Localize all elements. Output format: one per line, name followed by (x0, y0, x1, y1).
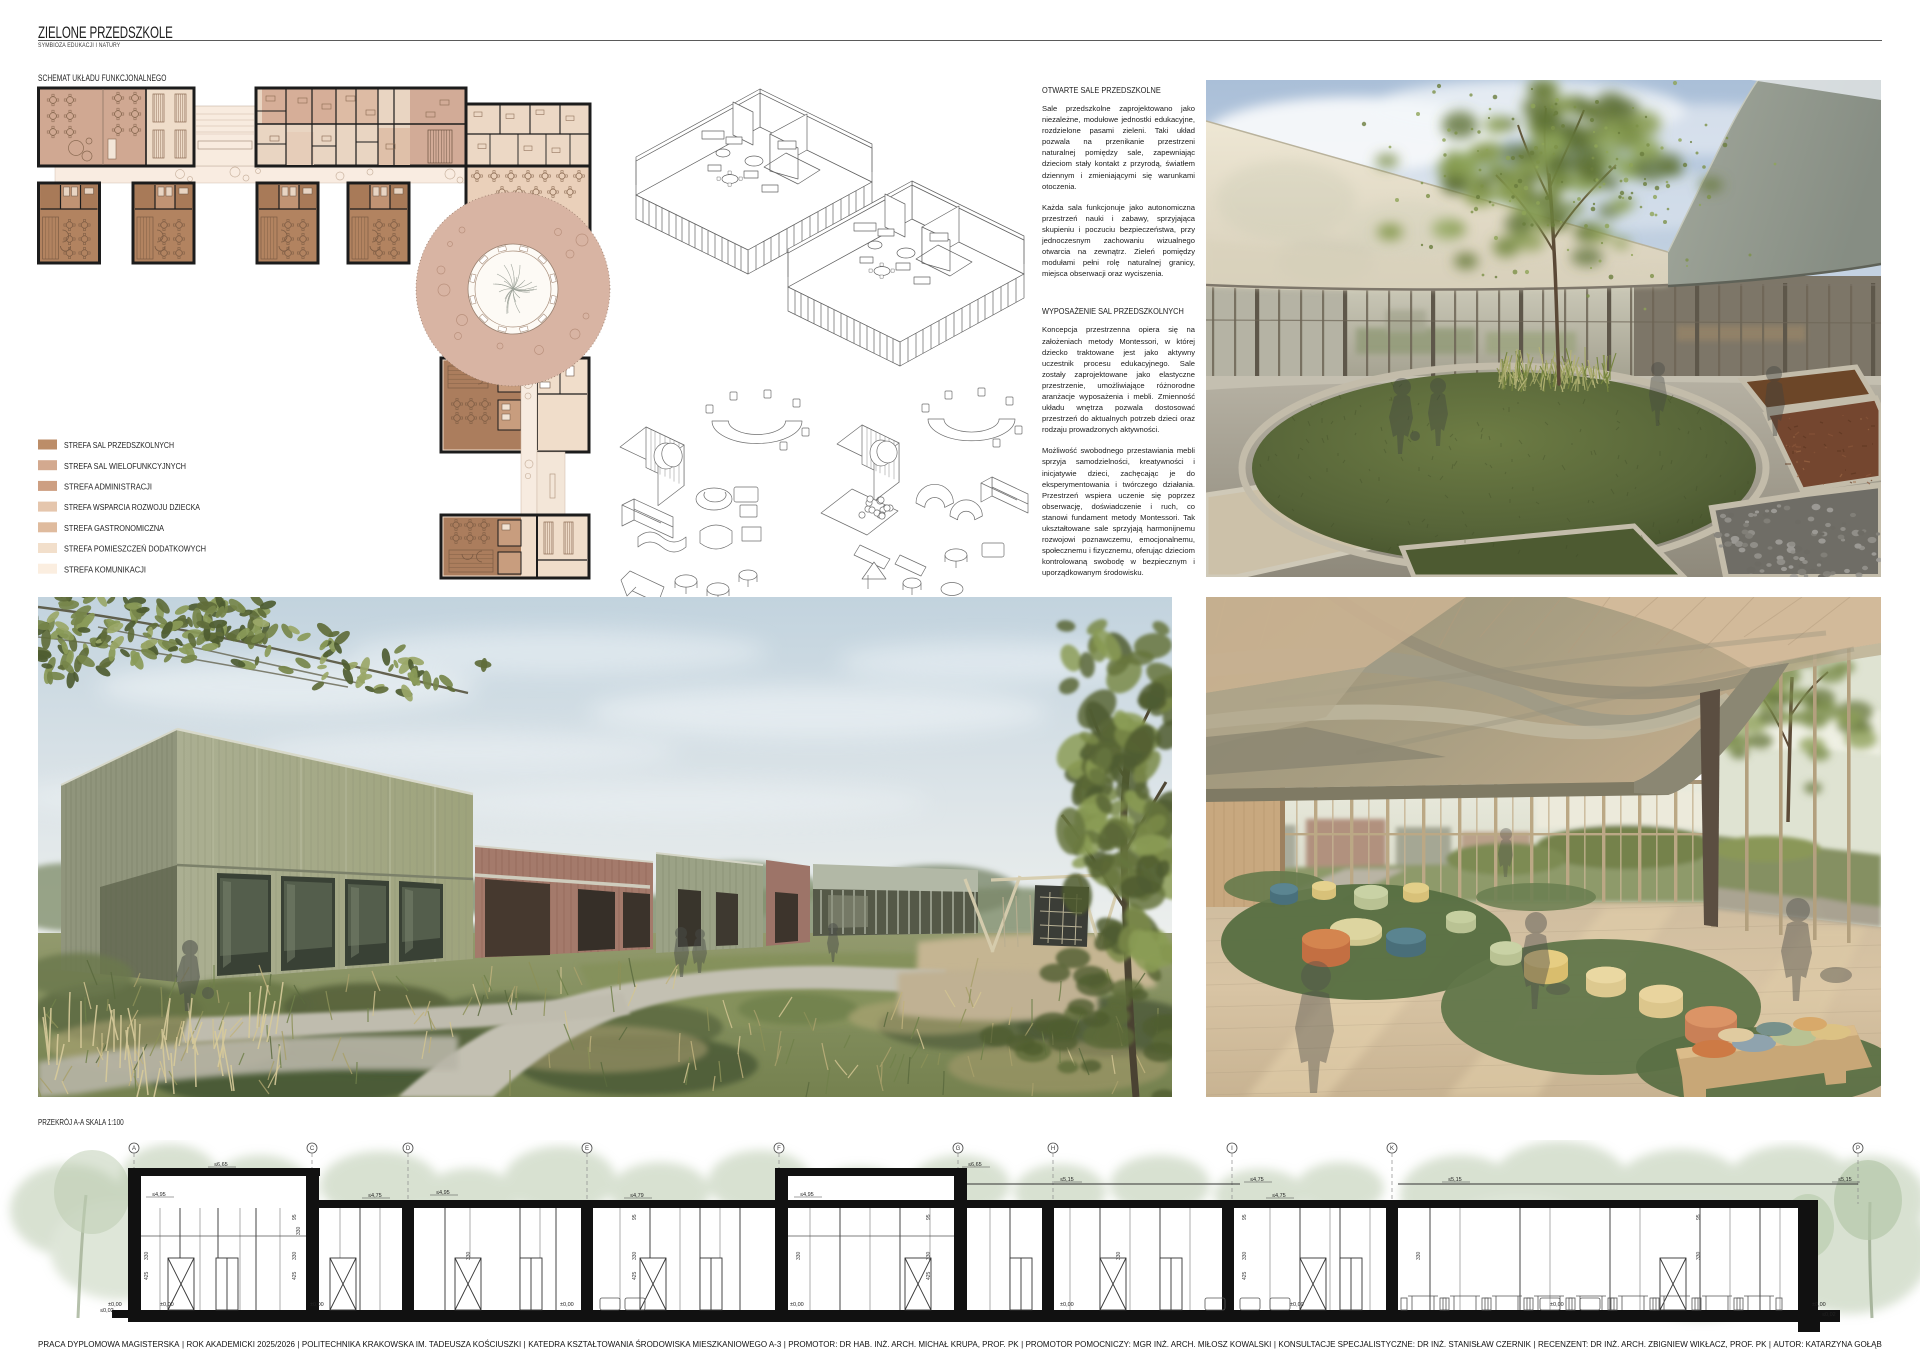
svg-text:±0,00: ±0,00 (1060, 1302, 1074, 1308)
svg-text:425: 425 (1242, 1271, 1248, 1280)
svg-text:95: 95 (926, 1214, 932, 1220)
svg-text:425: 425 (144, 1271, 150, 1280)
svg-text:≤0,02: ≤0,02 (100, 1308, 114, 1314)
svg-text:330: 330 (466, 1251, 472, 1260)
svg-text:STREFA POMIESZCZEŃ DODATKOWYCH: STREFA POMIESZCZEŃ DODATKOWYCH (64, 544, 206, 554)
svg-text:330: 330 (1416, 1251, 1422, 1260)
svg-text:95: 95 (1242, 1214, 1248, 1220)
svg-text:P: P (1856, 1146, 1860, 1152)
svg-text:K: K (1390, 1146, 1394, 1152)
svg-text:STREFA GASTRONOMICZNA: STREFA GASTRONOMICZNA (64, 523, 164, 533)
svg-text:330: 330 (144, 1251, 150, 1260)
svg-text:H: H (1051, 1146, 1055, 1152)
svg-text:330: 330 (1696, 1251, 1702, 1260)
svg-text:F: F (777, 1146, 781, 1152)
svg-text:330: 330 (292, 1251, 298, 1260)
svg-text:D: D (406, 1146, 411, 1152)
svg-text:±0,00: ±0,00 (790, 1302, 804, 1308)
svg-text:330: 330 (1242, 1251, 1248, 1260)
svg-text:330: 330 (926, 1251, 932, 1260)
svg-text:330: 330 (796, 1251, 802, 1260)
svg-text:±0,00: ±0,00 (1812, 1302, 1826, 1308)
svg-text:330: 330 (632, 1251, 638, 1260)
svg-text:425: 425 (632, 1271, 638, 1280)
svg-text:≤0,02: ≤0,02 (1822, 1312, 1836, 1318)
svg-text:±0,00: ±0,00 (1290, 1302, 1304, 1308)
svg-text:±0,00: ±0,00 (560, 1302, 574, 1308)
svg-text:±0,00: ±0,00 (160, 1302, 174, 1308)
svg-text:STREFA SAL WIELOFUNKCYJNYCH: STREFA SAL WIELOFUNKCYJNYCH (64, 461, 186, 471)
svg-text:425: 425 (926, 1271, 932, 1280)
svg-text:95: 95 (292, 1214, 298, 1220)
svg-text:STREFA KOMUNIKACJI: STREFA KOMUNIKACJI (64, 564, 146, 574)
svg-text:±0,00: ±0,00 (310, 1302, 324, 1308)
svg-text:E: E (585, 1146, 589, 1152)
svg-text:95: 95 (1696, 1214, 1702, 1220)
svg-text:330: 330 (296, 1226, 302, 1235)
svg-text:330: 330 (1116, 1251, 1122, 1260)
svg-text:G: G (956, 1146, 961, 1152)
svg-text:STREFA SAL PRZEDSZKOLNYCH: STREFA SAL PRZEDSZKOLNYCH (64, 440, 174, 450)
svg-text:STREFA WSPARCIA ROZWOJU DZIECK: STREFA WSPARCIA ROZWOJU DZIECKA (64, 502, 200, 512)
svg-text:95: 95 (632, 1214, 638, 1220)
svg-text:A: A (132, 1146, 136, 1152)
svg-text:425: 425 (292, 1271, 298, 1280)
svg-text:C: C (310, 1146, 315, 1152)
svg-text:STREFA ADMINISTRACJI: STREFA ADMINISTRACJI (64, 482, 152, 492)
svg-text:±0,00: ±0,00 (1550, 1302, 1564, 1308)
